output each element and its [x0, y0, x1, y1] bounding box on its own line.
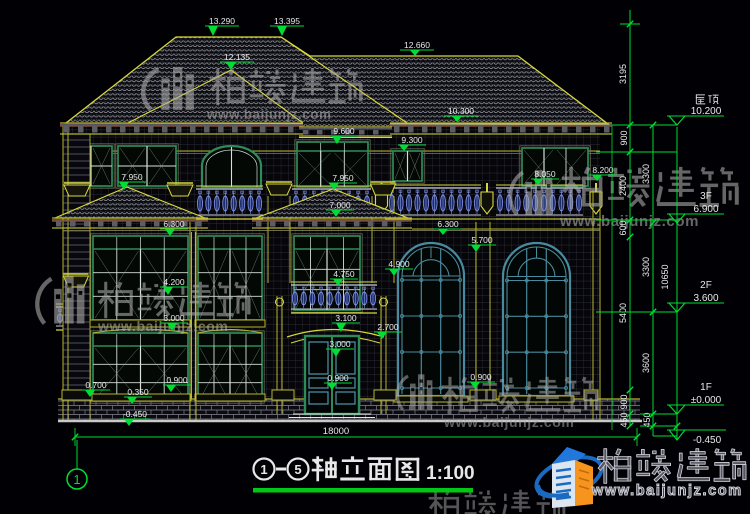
svg-text:10.300: 10.300 — [448, 106, 474, 116]
svg-text:3F: 3F — [700, 191, 712, 202]
svg-text:www.baijunjz.com: www.baijunjz.com — [591, 483, 743, 499]
svg-text:10.200: 10.200 — [691, 106, 722, 117]
svg-text:6.900: 6.900 — [693, 204, 718, 215]
svg-text:-0.450: -0.450 — [123, 409, 147, 419]
svg-text:7.950: 7.950 — [332, 173, 354, 183]
svg-text:600: 600 — [618, 220, 628, 235]
svg-text:3.000: 3.000 — [329, 339, 351, 349]
svg-text:0.700: 0.700 — [85, 380, 107, 390]
svg-text:1: 1 — [73, 472, 80, 487]
svg-text:8.050: 8.050 — [534, 169, 556, 179]
svg-text:3600: 3600 — [641, 353, 651, 373]
svg-text:3.100: 3.100 — [335, 313, 357, 323]
svg-text:www.baijunjz.com: www.baijunjz.com — [443, 414, 574, 430]
svg-text:±0.000: ±0.000 — [691, 395, 722, 406]
svg-text:2400: 2400 — [618, 176, 628, 196]
svg-text:1F: 1F — [700, 382, 712, 393]
svg-text:3300: 3300 — [641, 164, 651, 184]
svg-text:8.200: 8.200 — [592, 165, 614, 175]
svg-text:10650: 10650 — [660, 264, 670, 289]
svg-text:7.000: 7.000 — [329, 200, 351, 210]
svg-text:12.660: 12.660 — [404, 40, 430, 50]
svg-text:1:100: 1:100 — [426, 463, 475, 484]
svg-text:450: 450 — [642, 412, 652, 427]
svg-text:0.900: 0.900 — [327, 373, 349, 383]
svg-text:9.300: 9.300 — [401, 135, 423, 145]
svg-text:0.900: 0.900 — [470, 372, 492, 382]
svg-text:5: 5 — [294, 462, 301, 477]
svg-text:2.700: 2.700 — [377, 322, 399, 332]
svg-text:3300: 3300 — [641, 257, 651, 277]
svg-text:3.000: 3.000 — [163, 313, 185, 323]
svg-text:900: 900 — [619, 394, 629, 409]
svg-text:4.900: 4.900 — [388, 259, 410, 269]
svg-text:6.300: 6.300 — [163, 219, 185, 229]
svg-text:450: 450 — [619, 412, 629, 427]
svg-text:1: 1 — [260, 462, 267, 477]
svg-text:3195: 3195 — [618, 64, 628, 84]
svg-text:13.395: 13.395 — [274, 16, 300, 26]
svg-text:18000: 18000 — [323, 426, 349, 437]
svg-text:13.290: 13.290 — [209, 16, 235, 26]
svg-text:3.600: 3.600 — [693, 293, 718, 304]
svg-text:-0.450: -0.450 — [693, 435, 722, 446]
svg-text:5.700: 5.700 — [471, 235, 493, 245]
svg-text:900: 900 — [619, 130, 629, 145]
svg-text:0.350: 0.350 — [127, 387, 149, 397]
svg-text:9.600: 9.600 — [333, 126, 355, 136]
svg-text:6.300: 6.300 — [437, 219, 459, 229]
svg-text:5400: 5400 — [618, 303, 628, 323]
svg-text:0.900: 0.900 — [166, 375, 188, 385]
svg-text:7.950: 7.950 — [121, 172, 143, 182]
svg-text:www.baijunjz.com: www.baijunjz.com — [206, 107, 332, 122]
svg-text:2F: 2F — [700, 280, 712, 291]
svg-text:12.135: 12.135 — [224, 52, 250, 62]
svg-text:4.750: 4.750 — [333, 269, 355, 279]
svg-text:4.200: 4.200 — [163, 277, 185, 287]
